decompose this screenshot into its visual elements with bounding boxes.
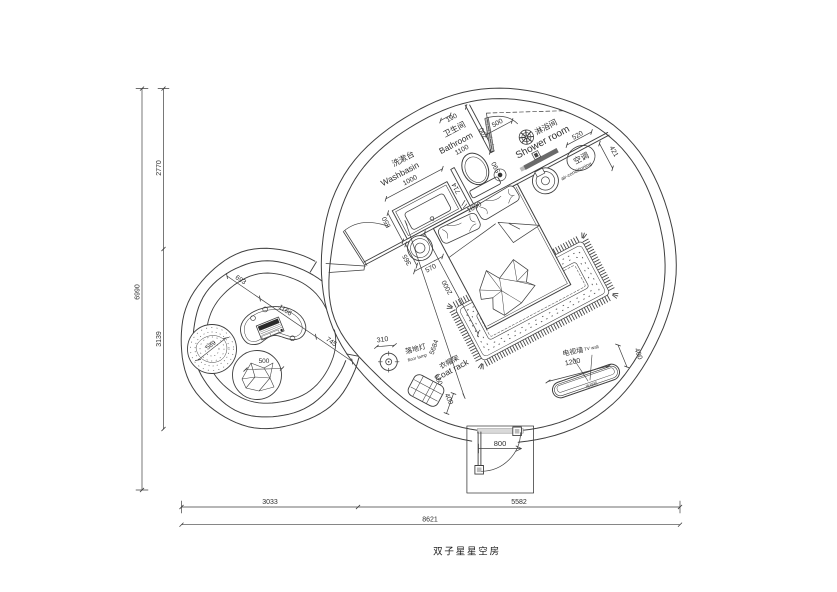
svg-text:2770: 2770: [156, 160, 163, 176]
svg-text:3033: 3033: [262, 499, 278, 506]
svg-text:双子星星空房: 双子星星空房: [433, 546, 501, 558]
svg-text:800: 800: [494, 439, 507, 448]
svg-text:5582: 5582: [511, 499, 527, 506]
svg-text:500: 500: [259, 358, 270, 365]
svg-text:3139: 3139: [156, 331, 163, 347]
svg-text:6990: 6990: [135, 284, 142, 300]
svg-text:8621: 8621: [422, 517, 438, 524]
